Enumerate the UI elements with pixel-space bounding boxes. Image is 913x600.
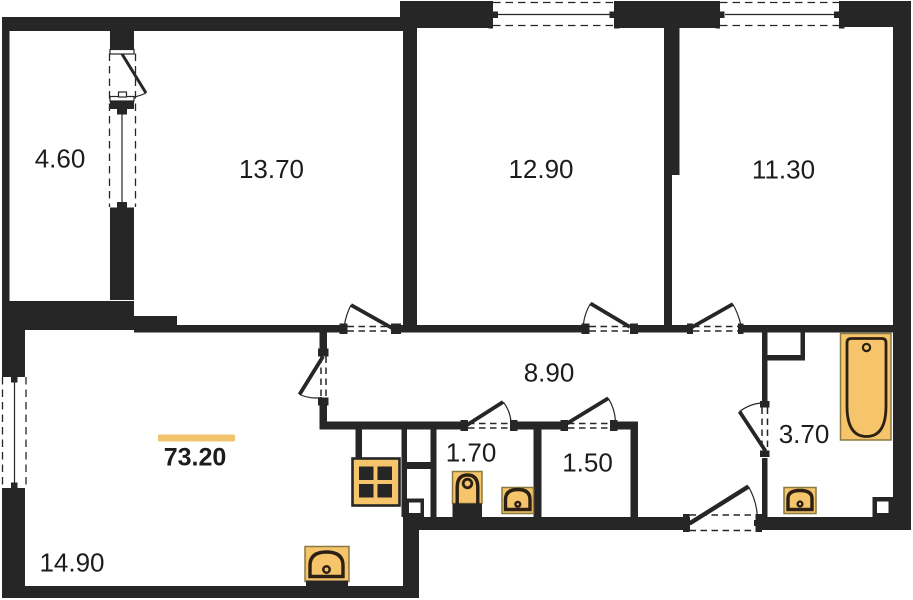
svg-text:8.90: 8.90 [524, 358, 575, 388]
svg-text:4.60: 4.60 [35, 144, 86, 174]
svg-text:73.20: 73.20 [164, 444, 227, 472]
svg-text:14.90: 14.90 [39, 548, 104, 578]
svg-text:12.90: 12.90 [508, 154, 573, 184]
svg-text:1.70: 1.70 [446, 438, 497, 468]
svg-text:13.70: 13.70 [239, 154, 304, 184]
svg-text:3.70: 3.70 [779, 419, 830, 449]
svg-text:1.50: 1.50 [562, 448, 613, 478]
svg-text:11.30: 11.30 [752, 155, 815, 185]
